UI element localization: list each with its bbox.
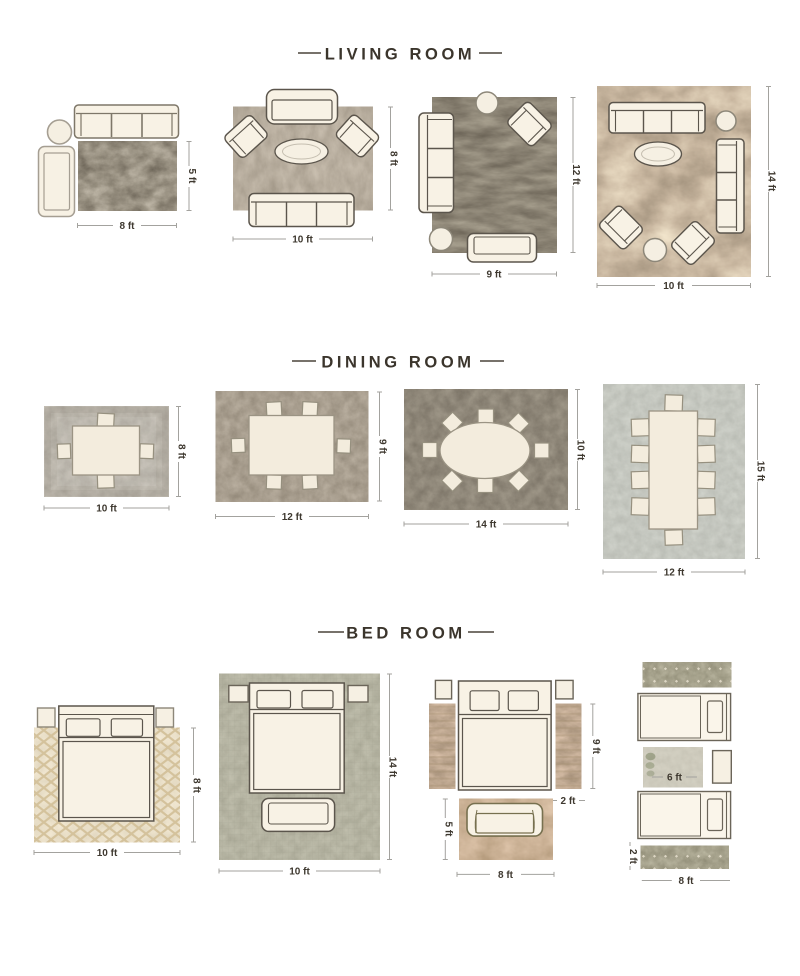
svg-text:9 ft: 9 ft [590,739,601,755]
svg-text:6 ft: 6 ft [667,773,683,784]
svg-text:8 ft: 8 ft [191,778,202,794]
svg-text:10 ft: 10 ft [289,867,310,878]
svg-text:12 ft: 12 ft [570,164,581,185]
svg-text:5 ft: 5 ft [186,169,197,185]
svg-text:8 ft: 8 ft [498,870,514,881]
svg-text:15 ft: 15 ft [755,461,766,482]
svg-text:10 ft: 10 ft [575,440,586,461]
svg-text:14 ft: 14 ft [476,520,497,531]
svg-text:BED ROOM: BED ROOM [346,625,466,643]
svg-text:2 ft: 2 ft [561,796,577,807]
svg-text:DINING ROOM: DINING ROOM [321,354,474,372]
svg-text:10 ft: 10 ft [97,848,118,859]
svg-text:9 ft: 9 ft [487,270,503,281]
svg-text:8 ft: 8 ft [120,221,136,232]
svg-text:14 ft: 14 ft [766,171,777,192]
svg-text:8 ft: 8 ft [679,876,695,887]
svg-text:10 ft: 10 ft [292,235,313,246]
svg-text:2 ft: 2 ft [627,849,638,865]
svg-text:14 ft: 14 ft [387,757,398,778]
svg-text:9 ft: 9 ft [377,439,388,455]
svg-text:12 ft: 12 ft [664,568,685,579]
svg-text:12 ft: 12 ft [282,512,303,523]
svg-text:5 ft: 5 ft [442,822,453,838]
svg-text:10 ft: 10 ft [663,281,684,292]
svg-text:10 ft: 10 ft [96,504,117,515]
svg-text:LIVING ROOM: LIVING ROOM [325,46,476,64]
svg-text:8 ft: 8 ft [388,151,399,167]
svg-text:8 ft: 8 ft [176,444,187,460]
